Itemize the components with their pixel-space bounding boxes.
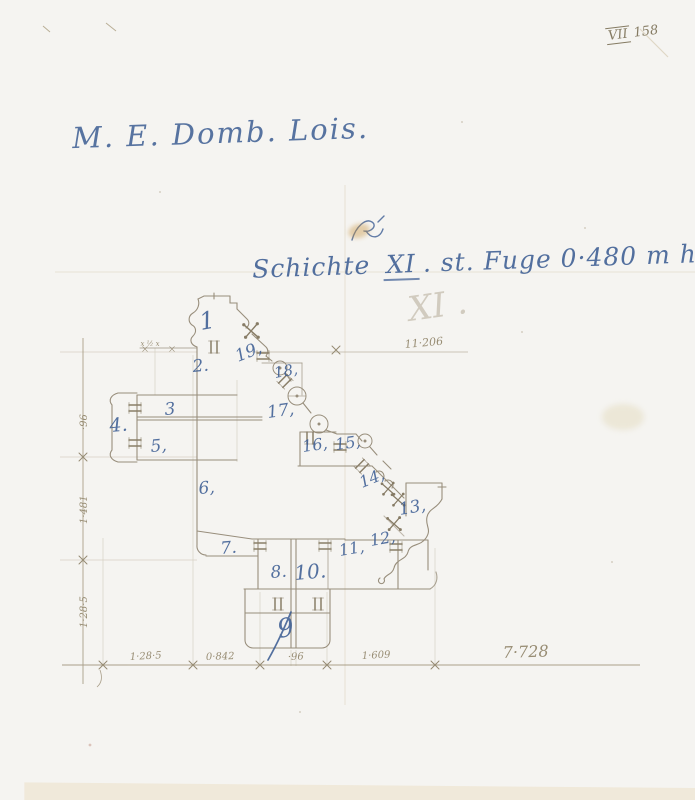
stone-label-16: 16,: [301, 434, 329, 456]
archive-mark-number: 158: [633, 23, 659, 41]
stone-label-12: 12,: [368, 527, 396, 550]
dim-bottom-1: 0·842: [206, 651, 235, 663]
stone-label-11: 11,: [337, 537, 365, 560]
dim-joint-note: x ½ x: [140, 340, 159, 348]
faint-numeral: XI .: [406, 282, 470, 330]
dim-left-0: ·96: [79, 413, 90, 430]
dimension-lines: [62, 338, 640, 687]
stone-label-8: 8.: [270, 562, 288, 583]
stone-label-13: 13,: [397, 496, 427, 520]
stone-label-19: 19,: [232, 338, 265, 367]
stone-label-18: 18,: [273, 360, 300, 382]
dim-left-1: 1·481: [79, 495, 90, 524]
archive-mark-roman: VII: [605, 25, 631, 45]
dim-bottom-0: 1·28·5: [130, 650, 162, 663]
title-numeral: XI: [383, 249, 420, 281]
dim-bottom-3: 1·609: [362, 649, 392, 662]
stone-label-6: 6,: [198, 478, 216, 499]
dim-top-width: 11·206: [404, 335, 443, 351]
stone-label-7: 7.: [220, 538, 238, 559]
stone-label-1: 1: [197, 306, 217, 336]
stone-label-14: 14,: [356, 465, 387, 492]
construction-lines: [60, 348, 435, 666]
stone-label-17: 17,: [266, 399, 296, 423]
stone-label-5: 5,: [150, 436, 168, 457]
dim-left-2: 1·28·5: [79, 596, 90, 628]
stone-label-15: 15,: [334, 432, 362, 454]
stone-label-3: 3: [164, 399, 177, 420]
dimension-ticks: [79, 346, 439, 669]
stone-label-2: 2.: [191, 356, 210, 377]
plan-outline: [110, 293, 446, 648]
title-word: Schichte: [252, 251, 371, 284]
stone-label-10: 10.: [293, 558, 327, 585]
flourish-mark: [352, 216, 384, 240]
dim-bottom-2: ·96: [288, 651, 305, 663]
stone-label-4: 4.: [108, 413, 129, 437]
dimension-labels: 1·28·5 0·842 ·96 1·609 7·728 11·206 ·96 …: [79, 335, 549, 663]
dim-bottom-total: 7·728: [502, 641, 548, 662]
